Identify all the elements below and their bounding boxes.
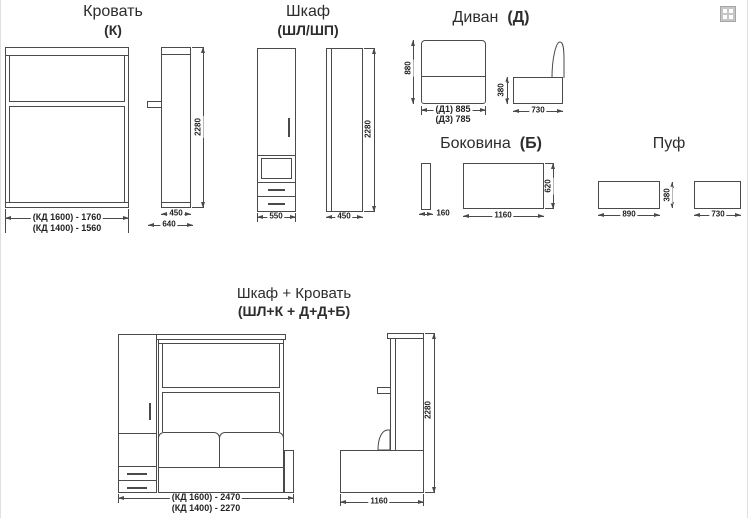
sofa-width-d3: (Д3) 785	[434, 115, 473, 125]
sofa-code: (Д)	[507, 9, 529, 27]
combo-backrest-curve	[376, 428, 392, 451]
bed-title: Кровать (К)	[83, 3, 143, 38]
combo-front-width-1400: (КД 1400) - 2270	[170, 504, 242, 514]
combo-side-sofa	[340, 450, 424, 493]
wardrobe-title-text: Шкаф	[286, 3, 330, 20]
combo-wardrobe-handle	[149, 403, 151, 420]
sidewall-title: Боковина (Б)	[440, 135, 542, 153]
bed-handle	[147, 101, 162, 108]
wardrobe-height: 2280	[365, 118, 374, 140]
sofa-depth: 730	[529, 107, 546, 116]
combo-title-text: Шкаф + Кровать	[237, 285, 351, 302]
sidewall-title-text: Боковина	[440, 135, 511, 153]
pouf-front-width: 890	[620, 211, 637, 220]
pouf-title: Пуф	[653, 135, 685, 153]
wardrobe-code: (ШЛ/ШП)	[277, 22, 338, 38]
sidewall-thickness: 160	[434, 210, 451, 219]
combo-wardrobe	[118, 334, 157, 493]
combo-depth: 1160	[368, 498, 389, 507]
sidewall-length: 1160	[492, 212, 513, 221]
combo-code: (ШЛ+К + Д+Д+Б)	[237, 303, 351, 319]
pouf-title-text: Пуф	[653, 135, 685, 152]
sofa-height: 880	[405, 59, 414, 76]
wardrobe-side-width: 450	[335, 213, 352, 222]
bed-front-width-1600: (КД 1600) - 1760	[31, 213, 103, 223]
sidewall-code: (Б)	[520, 135, 542, 153]
sofa-title-text: Диван	[453, 9, 499, 27]
sofa-backrest-curve	[549, 40, 567, 79]
sofa-title: Диван (Д)	[453, 9, 530, 27]
pouf-depth: 730	[709, 211, 726, 220]
wardrobe-door-handle	[288, 118, 290, 137]
combo-sofa-cushion-right	[219, 432, 284, 468]
combo-side-handle	[377, 387, 391, 394]
bed-height: 2280	[195, 116, 204, 138]
bed-side-total: 640	[160, 221, 177, 230]
wardrobe-front-width: 550	[267, 213, 284, 222]
combo-sofa-seat	[158, 467, 284, 493]
combo-sofa-cushion-left	[158, 432, 220, 468]
furniture-dimension-diagram: Кровать (К) (КД 1600) - 1760 (КД 1400) -…	[0, 0, 748, 518]
wardrobe-title: Шкаф (ШЛ/ШП)	[277, 3, 338, 38]
bed-front-width-1400: (КД 1400) - 1560	[31, 224, 103, 234]
combo-title: Шкаф + Кровать (ШЛ+К + Д+Д+Б)	[237, 285, 351, 319]
grid-icon[interactable]	[720, 6, 736, 22]
sidewall-height: 620	[545, 177, 554, 194]
pouf-height: 380	[664, 186, 673, 203]
combo-front-width-1600: (КД 1600) - 2470	[170, 493, 242, 503]
bed-side-width: 450	[167, 210, 184, 219]
sofa-seat-height: 380	[498, 81, 507, 98]
bed-code: (К)	[83, 22, 143, 38]
bed-title-text: Кровать	[83, 3, 143, 20]
combo-sidewall	[284, 450, 294, 493]
combo-height: 2280	[425, 399, 434, 421]
